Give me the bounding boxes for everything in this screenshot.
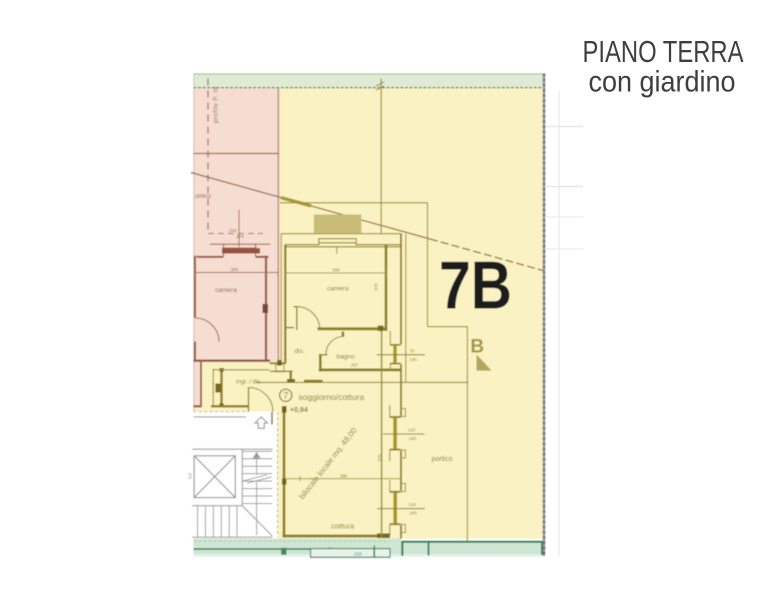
svg-text:126: 126	[408, 502, 416, 507]
svg-text:270: 270	[236, 234, 244, 239]
svg-text:240: 240	[409, 511, 417, 516]
svg-text:B: B	[470, 336, 484, 357]
svg-text:camera: camera	[327, 286, 349, 293]
svg-text:140: 140	[409, 357, 417, 362]
svg-text:cottura: cottura	[331, 522, 355, 531]
svg-text:388: 388	[340, 473, 348, 478]
svg-text:240: 240	[409, 436, 417, 441]
svg-text:388: 388	[332, 267, 340, 272]
svg-text:267: 267	[351, 362, 359, 367]
svg-text:portico: portico	[431, 456, 452, 463]
svg-text:376: 376	[374, 283, 379, 291]
svg-text:70: 70	[410, 348, 415, 353]
svg-text:profilo P. In: profilo P. In	[214, 86, 220, 123]
svg-text:3: 3	[188, 472, 193, 481]
svg-text:7B: 7B	[439, 248, 512, 324]
svg-text:soggiorno/cottura: soggiorno/cottura	[299, 392, 365, 402]
svg-text:300: 300	[231, 267, 239, 272]
svg-text:126: 126	[408, 428, 416, 433]
svg-text:bagno: bagno	[336, 354, 354, 361]
svg-text:ortico: ortico	[195, 193, 211, 200]
svg-text:PIANO TERRA: PIANO TERRA	[583, 34, 744, 69]
svg-text:dis.: dis.	[294, 348, 304, 355]
svg-text:370: 370	[377, 454, 382, 462]
svg-text:camera: camera	[215, 287, 237, 294]
svg-text:ingr. / dis.: ingr. / dis.	[236, 379, 262, 385]
svg-text:+0,94: +0,94	[290, 407, 308, 414]
svg-text:7: 7	[283, 391, 288, 401]
svg-text:con giardino: con giardino	[589, 66, 736, 99]
svg-text:220: 220	[354, 551, 362, 556]
svg-text:242: 242	[229, 228, 237, 233]
